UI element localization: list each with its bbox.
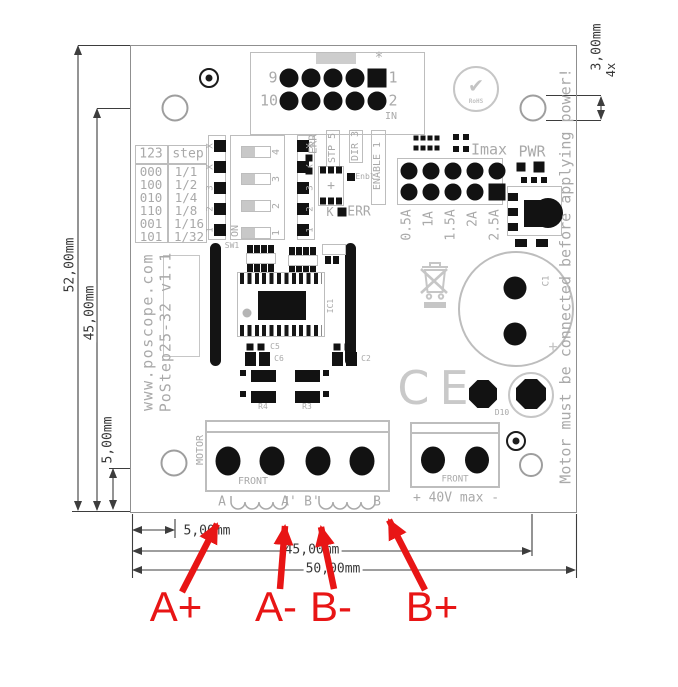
red-label-a-plus: A+ (150, 586, 203, 628)
pcb-dimension-diagram: 9 10 1 2 IN * 123 step 000 1/1 100 1/2 0… (0, 0, 678, 687)
red-label-b-plus: B+ (406, 586, 459, 628)
red-label-a-minus: A- (255, 586, 297, 628)
red-arrow-a-plus (182, 524, 217, 592)
red-label-b-minus: B- (310, 586, 352, 628)
red-arrow-a-minus (280, 526, 285, 589)
red-arrow-b-minus (321, 527, 334, 589)
red-arrow-b-plus (389, 520, 425, 590)
